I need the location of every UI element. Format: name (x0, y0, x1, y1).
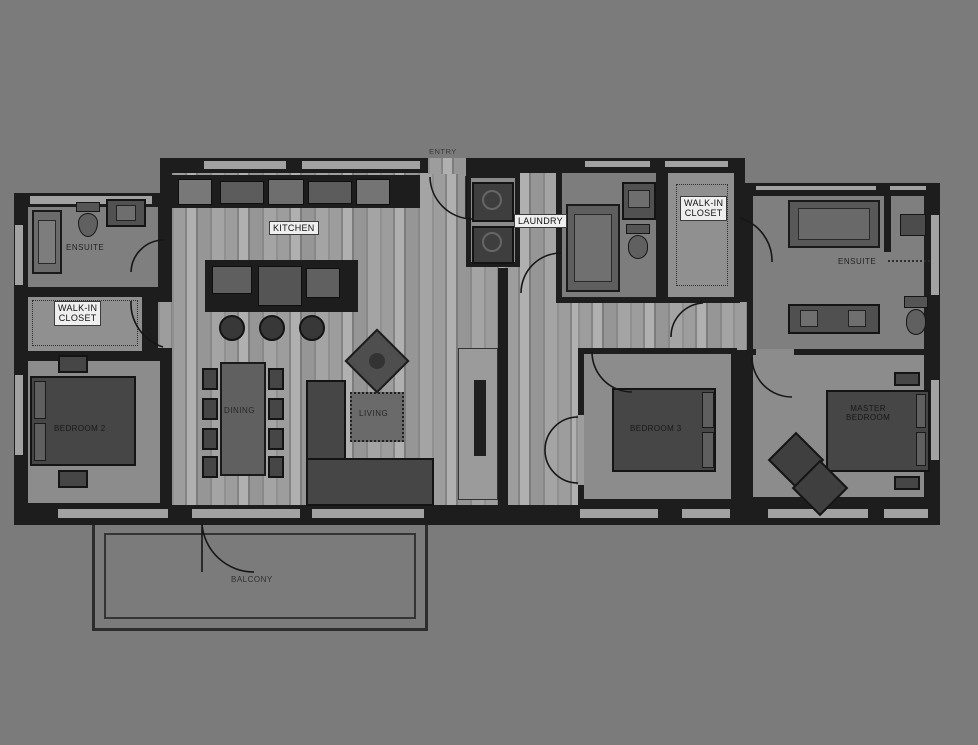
kitchen-label-text: KITCHEN (273, 223, 315, 233)
entry-text: ENTRY (429, 147, 457, 156)
walkin-right-line1: WALK-IN (684, 198, 723, 208)
kitchen-label: KITCHEN (269, 221, 319, 235)
walkin-right-line2: CLOSET (684, 208, 723, 218)
floor-plan: KITCHEN LAUNDRY WALK-IN CLOSET WALK-IN C… (0, 0, 978, 745)
living-text: LIVING (359, 409, 388, 418)
walkin-closet-left-label: WALK-IN CLOSET (54, 301, 101, 326)
dining-label: DINING (224, 406, 255, 415)
door-swing-arcs (0, 0, 978, 745)
master-bedroom-label: MASTER BEDROOM (846, 404, 890, 422)
bedroom3-text: BEDROOM 3 (630, 424, 682, 433)
ensuite-left-text: ENSUITE (66, 243, 104, 252)
bedroom3-label: BEDROOM 3 (630, 424, 682, 433)
balcony-label: BALCONY (231, 575, 273, 584)
walkin-closet-right-label: WALK-IN CLOSET (680, 196, 727, 221)
living-label: LIVING (359, 409, 388, 418)
master-line2: BEDROOM (846, 413, 890, 422)
balcony-text: BALCONY (231, 575, 273, 584)
walkin-left-line1: WALK-IN (58, 303, 97, 313)
master-line1: MASTER (846, 404, 890, 413)
dining-text: DINING (224, 406, 255, 415)
laundry-label-text: LAUNDRY (518, 216, 563, 226)
ensuite-right-text: ENSUITE (838, 257, 876, 266)
ensuite-right-label: ENSUITE (838, 257, 876, 266)
bedroom2-text: BEDROOM 2 (54, 424, 106, 433)
ensuite-left-label: ENSUITE (66, 243, 104, 252)
laundry-label: LAUNDRY (514, 214, 567, 228)
bedroom2-label: BEDROOM 2 (54, 424, 106, 433)
walkin-left-line2: CLOSET (58, 313, 97, 323)
entry-label: ENTRY (429, 147, 457, 156)
